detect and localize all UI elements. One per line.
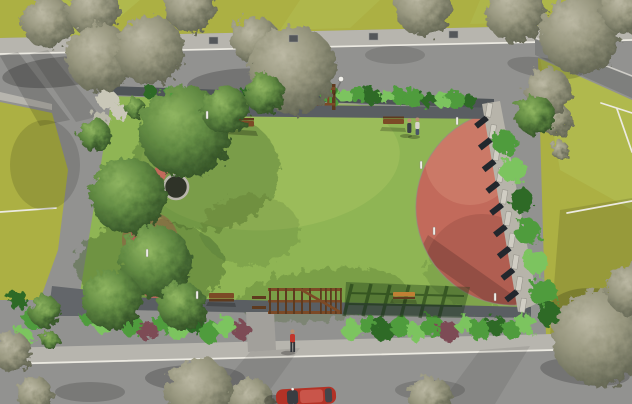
hedge-bush [486,315,506,335]
bench-southeast [390,292,417,304]
tree-shadow [10,120,80,210]
hedge-bush [524,250,548,274]
hedge-bush [500,157,526,183]
tree-canopy [82,270,142,330]
bollard-light [456,117,458,125]
person-torso [415,122,419,129]
hedge-bush [337,88,351,102]
scene-canvas: Pocket park — aerial 3D render [0,0,632,404]
car-rear-window [325,388,333,402]
hedge-bush [463,94,477,108]
bench-seat [209,293,234,299]
bench-frame [393,297,415,299]
person-head [290,329,294,333]
gate-rail [252,296,266,299]
hedge-bush [509,188,533,212]
person-leg [293,342,295,352]
shrub-sage [551,141,569,159]
bollard-light [433,227,435,235]
tree-planter-box [209,37,218,44]
tree-planter [164,175,188,199]
person-legs [416,129,420,135]
tree-canopy [79,119,111,151]
hedge-bush [379,90,393,104]
bollard-light [206,111,208,119]
tree-canopy [90,158,166,234]
tree-shadow [55,382,125,402]
hedge-bush [405,89,423,107]
flower-bush [233,322,251,340]
tree-canopy [515,95,555,135]
tree-canopy [158,282,206,330]
bollard-light [494,293,496,301]
bollard-light [146,249,148,257]
tree-canopy [201,86,249,134]
tree-planter-box [289,35,298,42]
person-head [415,118,419,122]
lamp-globe [338,76,343,81]
car-windshield [287,390,299,404]
hedge-bush [516,314,536,334]
hedge-bush [216,316,236,336]
bench-southwest [206,293,236,307]
tree-planter-box [369,33,378,40]
hedge-bush [492,130,516,154]
gate-rail [252,306,266,309]
bench-back [209,299,234,302]
shrub [125,98,145,118]
car-roof [300,389,324,403]
person-body [407,123,411,133]
bench-back [383,117,404,119]
bollard-light [420,161,422,169]
bench-seat [393,292,415,297]
person-head [407,119,411,123]
hedge-bush [529,278,557,306]
hedge-bush [143,85,157,99]
hedge-bush [390,316,410,336]
hedge-bush [447,91,465,109]
bench-seat [383,119,404,124]
hedge-bush [342,320,362,340]
person-leg [290,342,292,352]
person-shadow [408,135,420,139]
bollard-light [196,291,198,299]
tree-canopy [245,74,285,114]
hedge-bush [41,331,59,349]
tree-canopy [29,296,61,328]
tree-shadow [365,46,425,64]
hedge-bush [515,219,541,245]
hedge-bush [363,87,381,105]
park-aerial-render: Pocket park — aerial 3D render [0,0,632,404]
tree-planter-box [449,31,458,38]
person-shadow [281,351,295,355]
hedge-bush [8,290,28,310]
hedge-bush [421,92,435,106]
person-torso [290,334,295,343]
tree-shadow [200,195,300,265]
